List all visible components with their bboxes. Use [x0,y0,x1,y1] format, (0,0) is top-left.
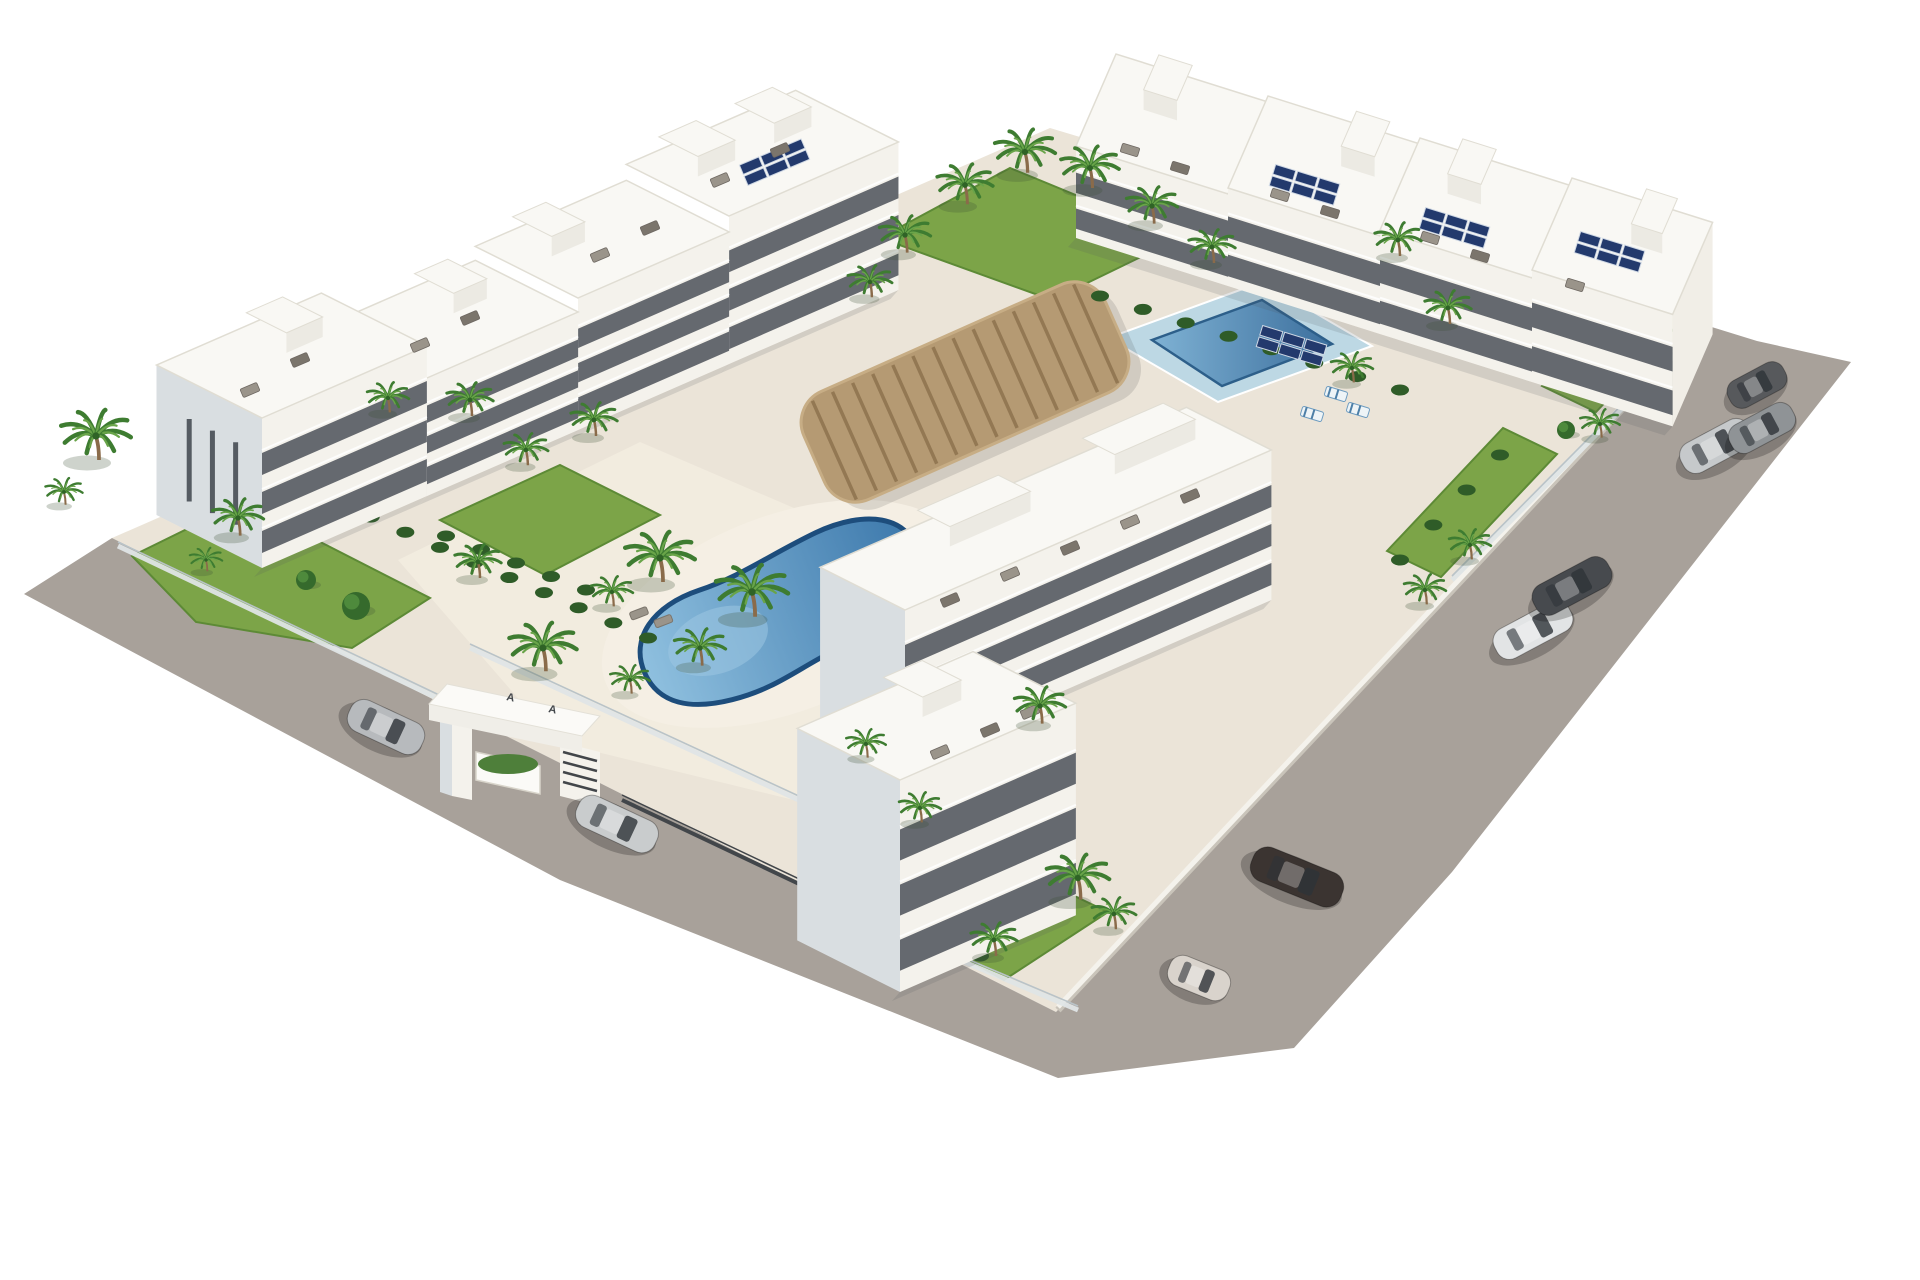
palm-shadow [849,294,879,304]
palm-crown [1396,238,1401,243]
palm-shadow [676,662,711,673]
hedge-bush [1391,385,1409,396]
palm-shadow [881,249,916,260]
palm-crown [918,806,922,810]
palm-shadow [1093,926,1123,936]
palm-shadow [1063,184,1103,197]
palm-crown [476,560,481,565]
render-canvas: AA [0,0,1920,1280]
palm-shadow [611,691,638,700]
gate-pillar-side [440,712,452,796]
hedge-bush [507,558,525,569]
hedge-bush [535,587,553,598]
palm-shadow [191,569,213,576]
palm-crown [748,588,755,595]
palm-shadow [46,502,72,510]
hedge-bush [1424,520,1442,531]
palm-crown [92,432,99,439]
palm-crown [1350,366,1354,370]
palm-crown [697,645,702,650]
round-tree-highlight [298,572,309,583]
palm-crown [62,490,66,494]
hedge-bush [396,527,414,538]
palm-crown [1037,703,1042,708]
palm-crown [592,418,597,423]
planter-greenery [478,754,538,774]
palm-shadow [1190,260,1222,270]
palm-tree [45,478,82,510]
hedge-bush [1177,317,1195,328]
hedge-bush [542,571,560,582]
palm-shadow [1128,220,1163,231]
palm-crown [1022,149,1028,155]
palm-shadow [214,532,249,543]
palm-shadow [1581,435,1608,444]
palm-shadow [1016,720,1051,731]
palm-shadow [1048,896,1091,910]
round-tree-highlight [344,594,359,609]
hedge-bush [639,633,657,644]
architectural-rendering: AA [0,0,1920,1280]
hedge-bush [500,572,518,583]
palm-crown [1087,165,1093,171]
palm-crown [992,938,997,943]
palm-crown [1075,875,1081,881]
hedge-bush [1220,331,1238,342]
hedge-bush [437,531,455,542]
palm-crown [864,742,868,746]
palm-crown [468,398,473,403]
palm-crown [1446,306,1451,311]
palm-shadow [448,413,480,423]
palm-crown [386,396,390,400]
palm-shadow [368,410,397,419]
palm-crown [524,448,529,453]
palm-shadow [1426,321,1458,331]
palm-crown [1210,245,1215,250]
hedge-bush [1391,555,1409,566]
hedge-bush [431,542,449,553]
palm-crown [656,554,663,561]
palm-shadow [572,433,604,443]
palm-crown [235,515,240,520]
palm-crown [1468,543,1472,547]
palm-crown [1423,588,1427,592]
hedge-bush [1491,450,1509,461]
palm-tree [61,410,131,471]
palm-shadow [996,169,1038,182]
palm-crown [204,558,207,561]
palm-crown [610,590,614,594]
palm-shadow [972,953,1004,963]
palm-shadow [1332,380,1361,389]
palm-shadow [456,575,488,585]
palm-shadow [900,820,929,829]
palm-crown [540,645,547,652]
palm-shadow [627,578,675,593]
hedge-bush [604,617,622,628]
palm-crown [628,678,632,682]
hedge-bush [1134,304,1152,315]
hedge-bush [1091,291,1109,302]
palm-crown [1149,203,1154,208]
palm-crown [1598,422,1602,426]
palm-shadow [511,667,557,682]
palm-shadow [1405,602,1434,611]
palm-crown [1112,912,1117,917]
hedge-bush [1458,485,1476,496]
palm-shadow [939,201,977,213]
gate-pillar [452,716,472,800]
hedge-bush [570,602,588,613]
palm-shadow [505,462,535,472]
palm-crown [868,280,873,285]
round-tree-highlight [1558,422,1568,432]
palm-crown [962,182,968,188]
palm-shadow [63,456,111,471]
palm-shadow [1450,557,1479,566]
palm-shadow [1376,253,1408,263]
palm-shadow [592,604,621,613]
palm-shadow [847,755,874,764]
palm-shadow [718,612,768,628]
palm-crown [902,232,907,237]
